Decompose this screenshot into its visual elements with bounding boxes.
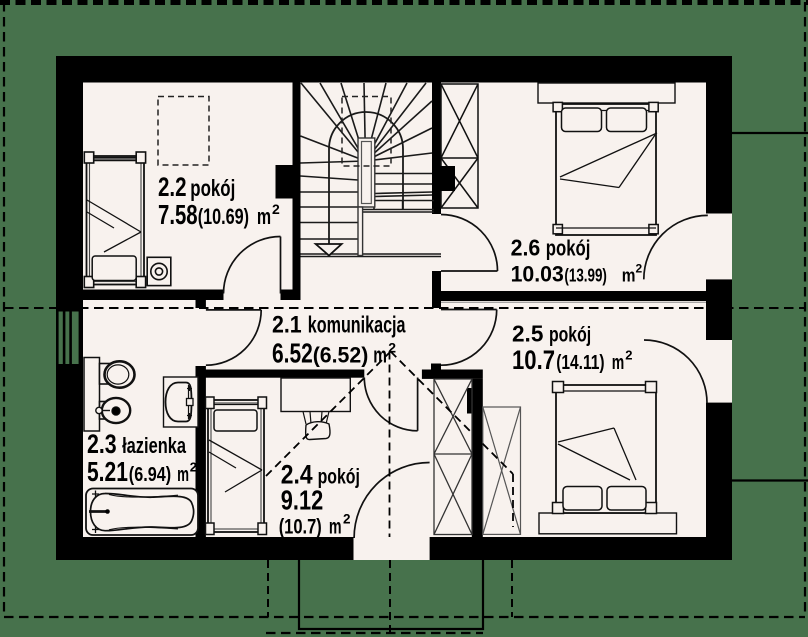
svg-text:6.52: 6.52 [272,338,313,369]
svg-text:pokój: pokój [546,236,591,261]
svg-text:(6.52): (6.52) [313,343,369,368]
svg-text:7.58: 7.58 [158,199,198,230]
svg-text:pokój: pokój [318,465,360,488]
svg-text:9.12: 9.12 [281,484,323,515]
svg-text:2: 2 [190,460,197,475]
svg-text:pokój: pokój [190,175,235,201]
svg-text:pokój: pokój [549,323,591,346]
svg-text:10.7: 10.7 [512,345,555,375]
svg-text:2: 2 [636,262,643,276]
svg-text:m: m [257,204,271,229]
svg-text:2.5: 2.5 [512,320,543,346]
svg-text:2: 2 [625,348,632,363]
svg-text:2.3: 2.3 [87,429,117,459]
svg-text:2.6: 2.6 [511,235,541,261]
svg-text:m: m [177,464,189,486]
svg-text:(13.99): (13.99) [564,265,607,286]
svg-text:m: m [612,352,625,374]
svg-text:10.03: 10.03 [511,262,564,287]
svg-text:2.2: 2.2 [158,172,187,202]
svg-text:m: m [622,265,636,286]
svg-text:2: 2 [343,512,351,527]
svg-text:2: 2 [388,340,396,356]
svg-text:m: m [329,515,342,538]
svg-text:(6.94): (6.94) [129,464,171,486]
svg-text:(14.11): (14.11) [556,352,604,374]
svg-text:komunikacja: komunikacja [308,312,406,338]
svg-text:(10.69): (10.69) [198,204,249,229]
svg-text:2.1: 2.1 [272,312,302,339]
svg-text:5.21: 5.21 [87,456,128,487]
svg-text:łazienka: łazienka [122,433,186,458]
svg-text:2: 2 [272,201,280,217]
svg-text:m: m [373,343,387,368]
svg-text:(10.7): (10.7) [279,515,322,538]
